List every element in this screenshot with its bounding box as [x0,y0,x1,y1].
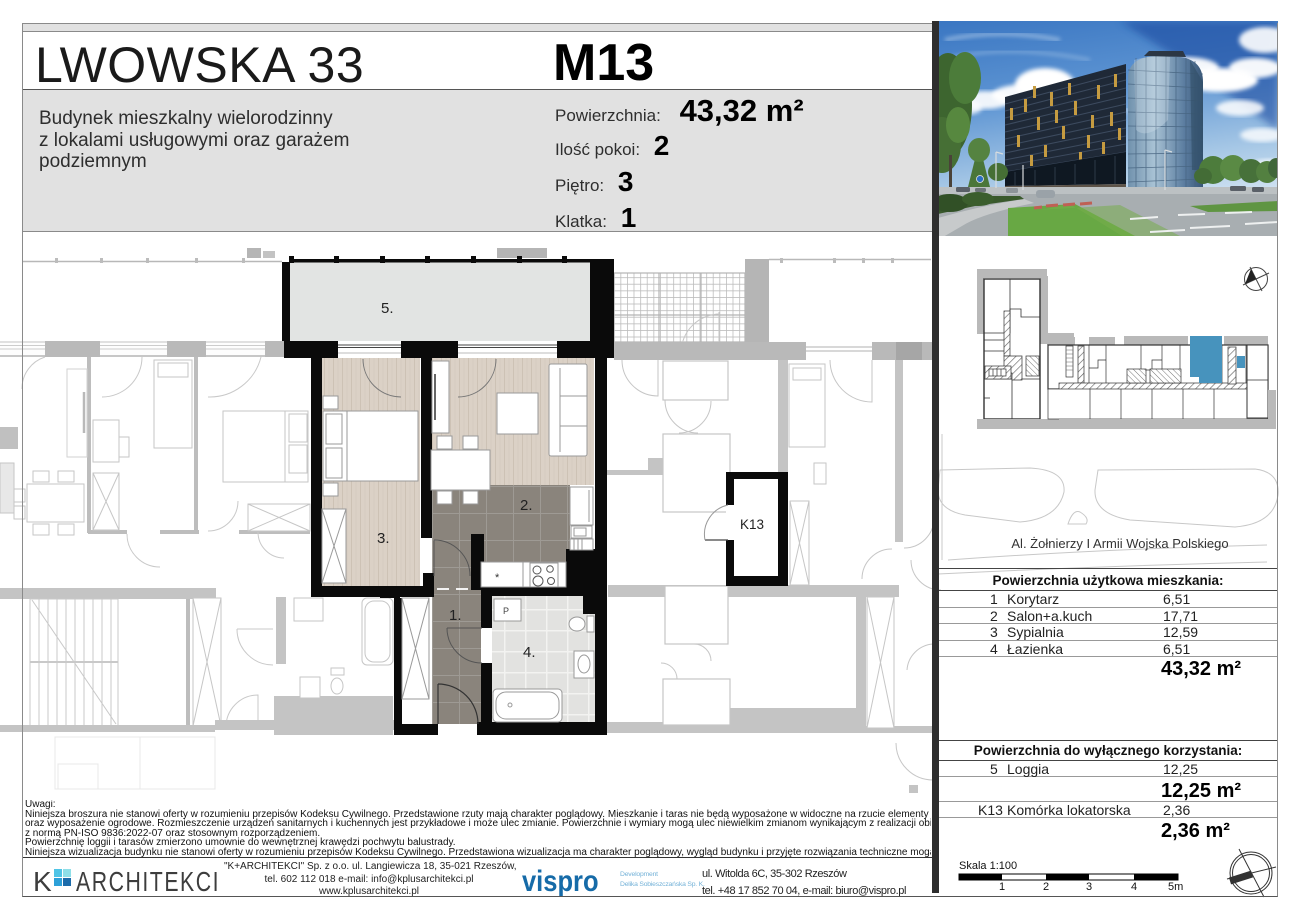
svg-text:3.: 3. [377,530,390,547]
svg-text:*: * [495,572,500,584]
svg-text:2.: 2. [520,497,533,514]
svg-text:P: P [503,606,509,616]
svg-text:K13: K13 [740,517,764,532]
svg-text:5.: 5. [381,300,394,317]
svg-text:1.: 1. [449,607,462,624]
svg-text:4.: 4. [523,644,536,661]
